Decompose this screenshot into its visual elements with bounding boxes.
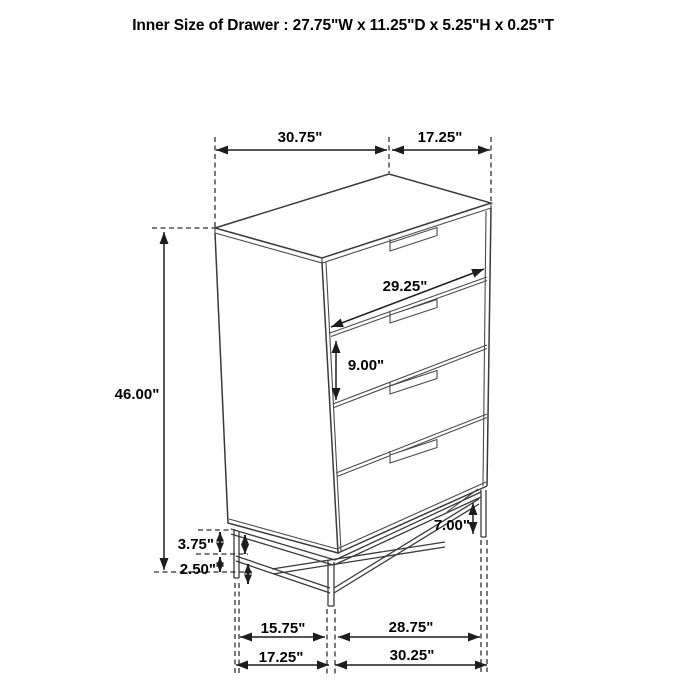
dim-feet-inner-width-label: 28.75" [389, 619, 434, 636]
extension-lines [152, 137, 491, 674]
dim-top-width-label: 30.75" [278, 129, 323, 146]
dimension-diagram: Inner Size of Drawer : 27.75"W x 11.25"D… [0, 0, 700, 700]
drawer-3-handle-icon [390, 371, 437, 395]
base-lower-rail-front [334, 499, 479, 593]
drawer-separator-2 [333, 345, 487, 408]
drawer-1-handle-icon [390, 228, 437, 252]
dim-upper-gap-label: 3.75" [178, 536, 214, 553]
base-frame [231, 489, 486, 606]
cabinet-top-surface [215, 174, 491, 258]
base-leg-front [328, 560, 334, 606]
dim-base-height-label: 7.00" [434, 517, 470, 534]
cabinet-right-edge [487, 208, 491, 486]
drawer-separators [330, 277, 487, 477]
cabinet-front-left-corner-line [326, 262, 341, 551]
dim-top-depth-label: 17.25" [418, 129, 463, 146]
chest-dimension-drawing: Inner Size of Drawer : 27.75"W x 11.25"D… [0, 0, 700, 700]
dim-feet-outer-depth-label: 17.25" [259, 649, 304, 666]
base-cross-stretcher [272, 542, 445, 574]
dim-feet-outer-width-label: 30.25" [390, 647, 435, 664]
cabinet-top-slab-thickness [215, 203, 491, 263]
cabinet-bottom-front-edge-inner [337, 482, 486, 549]
drawer-separator-3 [336, 414, 487, 477]
dim-drawer-width-label: 29.25" [383, 278, 428, 295]
dimension-arrows [164, 150, 490, 665]
dim-feet-inner-depth-label: 15.75" [261, 620, 306, 637]
page-title: Inner Size of Drawer : 27.75"W x 11.25"D… [132, 17, 554, 34]
drawer-handles [390, 228, 437, 464]
dim-overall-height-label: 46.00" [115, 386, 160, 403]
cabinet-left-face [215, 233, 338, 553]
dim-lower-gap-label: 2.50" [180, 561, 216, 578]
dim-drawer-height-label: 9.00" [348, 357, 384, 374]
base-leg-right [481, 490, 486, 537]
